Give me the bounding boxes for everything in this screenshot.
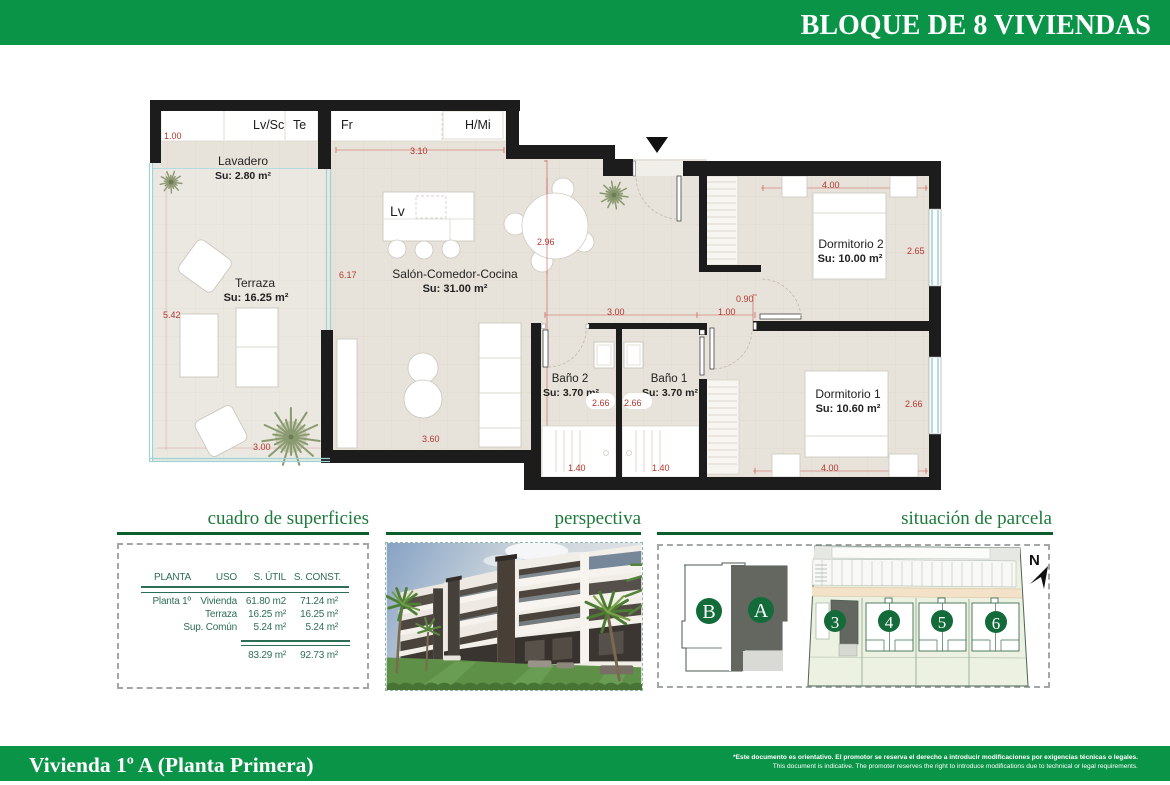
svg-text:Salón-Comedor-Cocina: Salón-Comedor-Cocina <box>392 267 518 281</box>
svg-text:2.66: 2.66 <box>624 398 642 408</box>
svg-text:2.65: 2.65 <box>907 246 925 256</box>
svg-text:Dormitorio 2: Dormitorio 2 <box>818 237 884 251</box>
svg-text:A: A <box>754 600 769 622</box>
svg-text:Lv/Sc: Lv/Sc <box>253 118 284 132</box>
svg-text:2.66: 2.66 <box>905 399 923 409</box>
svg-text:4: 4 <box>885 613 894 632</box>
svg-text:0.90: 0.90 <box>736 294 754 304</box>
svg-text:Su: 31.00 m²: Su: 31.00 m² <box>423 283 488 295</box>
svg-text:1.00: 1.00 <box>718 307 736 317</box>
svg-text:Su: 10.60 m²: Su: 10.60 m² <box>816 403 881 415</box>
svg-text:3.00: 3.00 <box>607 307 625 317</box>
svg-text:Terraza: Terraza <box>235 276 275 290</box>
svg-text:1.40: 1.40 <box>652 463 670 473</box>
svg-text:Baño 2: Baño 2 <box>552 373 588 385</box>
svg-text:1.40: 1.40 <box>568 463 586 473</box>
svg-text:6: 6 <box>992 614 1001 633</box>
svg-text:5.42: 5.42 <box>163 310 181 320</box>
svg-text:6.17: 6.17 <box>339 270 357 280</box>
svg-text:N: N <box>1029 552 1040 569</box>
svg-text:Fr: Fr <box>341 118 353 132</box>
svg-text:Dormitorio 1: Dormitorio 1 <box>815 387 881 401</box>
svg-text:H/Mi: H/Mi <box>465 118 491 132</box>
svg-text:3.60: 3.60 <box>422 434 440 444</box>
svg-text:Su: 2.80 m²: Su: 2.80 m² <box>215 170 272 182</box>
svg-text:Te: Te <box>293 118 306 132</box>
svg-text:1.00: 1.00 <box>164 131 182 141</box>
svg-text:Lv: Lv <box>390 203 405 219</box>
svg-text:3.00: 3.00 <box>253 442 271 452</box>
svg-text:Su: 10.00 m²: Su: 10.00 m² <box>818 253 883 265</box>
svg-text:5: 5 <box>938 613 947 632</box>
svg-text:B: B <box>702 601 715 623</box>
svg-text:3: 3 <box>831 613 840 632</box>
svg-text:Su: 16.25 m²: Su: 16.25 m² <box>224 292 289 304</box>
svg-text:4.00: 4.00 <box>822 180 840 190</box>
svg-text:4.00: 4.00 <box>821 463 839 473</box>
svg-text:Lavadero: Lavadero <box>218 154 268 168</box>
svg-text:3.10: 3.10 <box>410 146 428 156</box>
svg-text:Baño 1: Baño 1 <box>651 373 687 385</box>
svg-text:2.96: 2.96 <box>537 237 555 247</box>
svg-text:2.66: 2.66 <box>592 398 610 408</box>
